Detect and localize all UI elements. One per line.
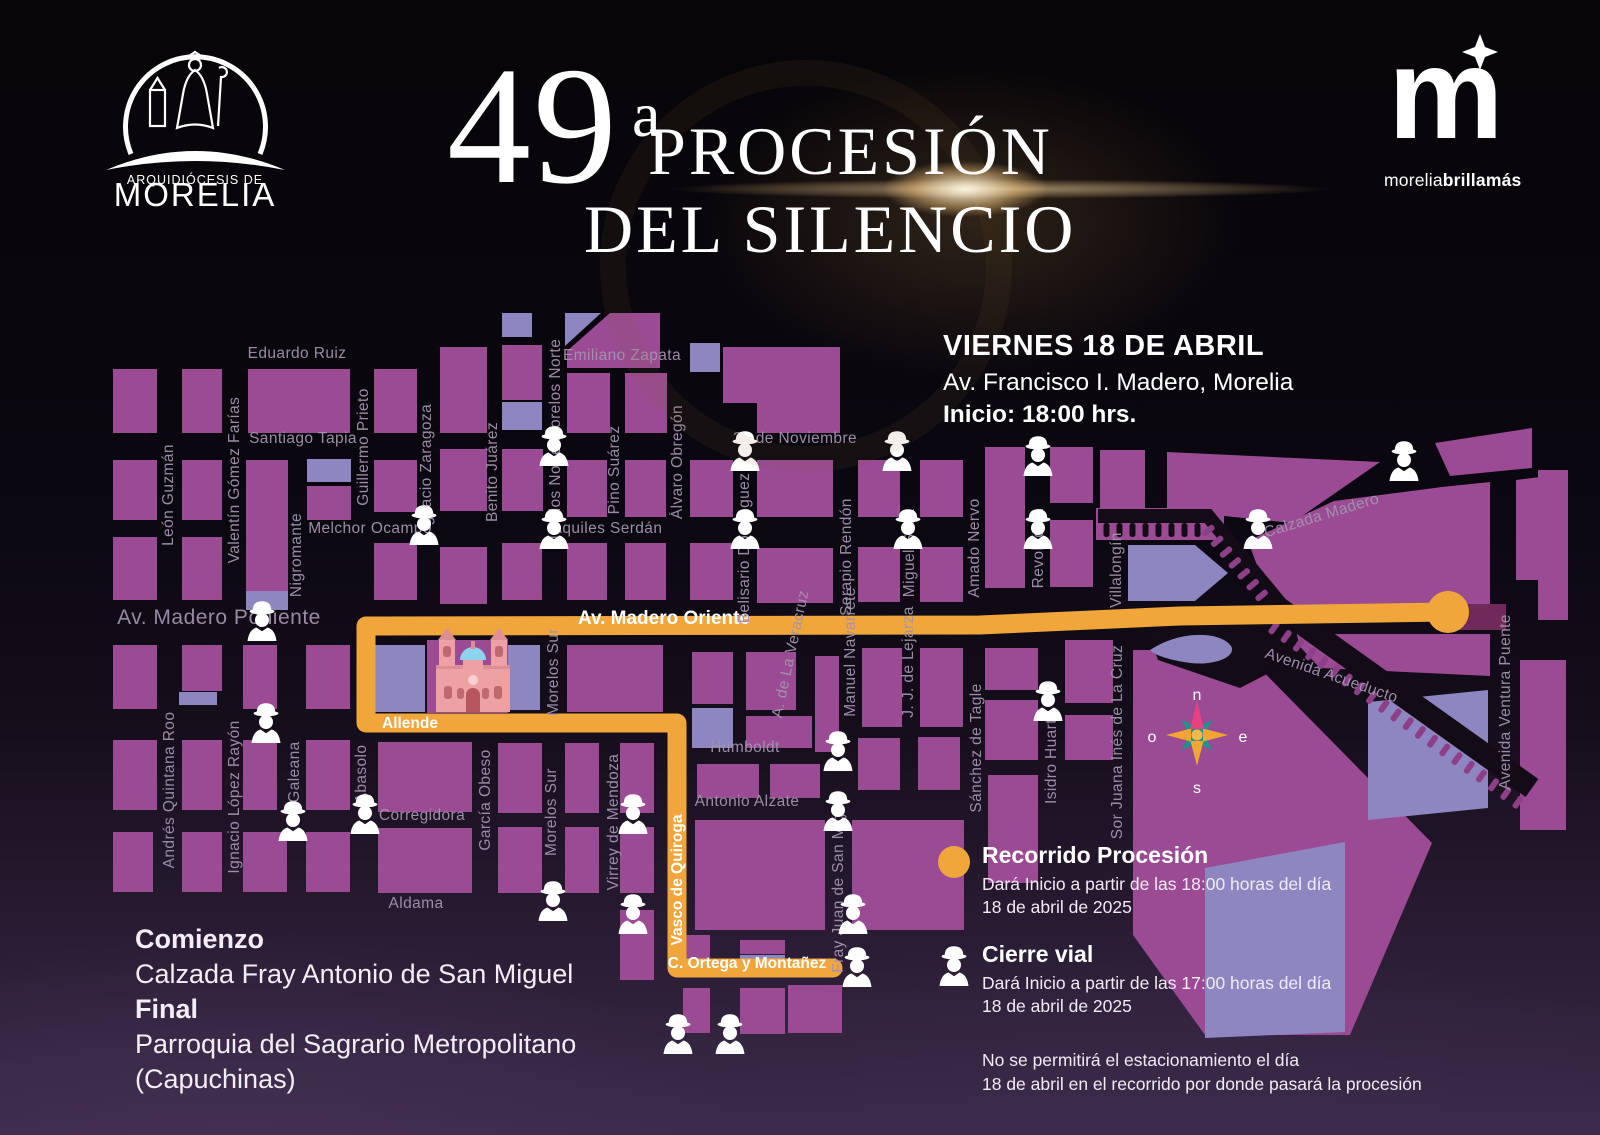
city-block (858, 738, 900, 790)
compass-label-south: s (1193, 780, 1201, 797)
city-block (1520, 660, 1566, 830)
city-block (1065, 640, 1113, 703)
street-label: Sánchez de Tagle (968, 683, 985, 812)
city-block (1050, 520, 1093, 587)
city-block (248, 369, 350, 433)
city-block (498, 743, 542, 813)
city-block-light (502, 402, 542, 430)
city-block (567, 543, 607, 600)
city-block (788, 985, 842, 1033)
start-value: Calzada Fray Antonio de San Miguel (135, 957, 576, 992)
city-block (567, 645, 663, 712)
tagline-mas: más (1486, 170, 1522, 190)
street-label: Aldama (389, 895, 444, 912)
city-block (695, 820, 825, 930)
city-block-light (1128, 545, 1228, 601)
street-label: Amado Nervo (966, 498, 983, 597)
street-label: Antonio Alzate (695, 793, 800, 810)
city-block (374, 460, 417, 512)
title-line-procesion: PROCESIÓN (648, 112, 1053, 191)
city-block (985, 447, 1025, 588)
event-location: Av. Francisco I. Madero, Morelia (943, 369, 1293, 397)
route-start-end-info: Comienzo Calzada Fray Antonio de San Mig… (135, 922, 576, 1097)
street-label: Corregidora (379, 807, 465, 824)
street-label: Avenida Ventura Puente (1497, 614, 1514, 790)
city-block (565, 827, 599, 893)
aqueduct-arch (1182, 523, 1188, 537)
legend-closure-desc2: 18 de abril de 2025 (982, 995, 1422, 1018)
street-label: Av. Madero Poniente (117, 606, 321, 629)
city-block (498, 827, 542, 893)
street-label: Valentín Gómez Farías (226, 397, 243, 564)
compass-label-west: o (1148, 729, 1157, 746)
city-block (502, 345, 542, 400)
city-block (378, 828, 472, 893)
street-label: Sor Juana Inés de La Cruz (1109, 645, 1126, 839)
city-block-light (179, 692, 217, 705)
city-block (740, 988, 785, 1034)
street-label: Humboldt (710, 739, 780, 756)
end-label: Final (135, 992, 576, 1027)
note-line2: 18 de abril en el recorrido por donde pa… (982, 1072, 1422, 1096)
city-block (182, 460, 222, 520)
end-value: Parroquia del Sagrario Metropolitano (135, 1027, 576, 1062)
street-label: Aquiles Serdán (552, 520, 663, 537)
police-officer-icon (1390, 441, 1419, 481)
route-street-label: C. Ortega y Montañez (668, 955, 827, 972)
street-label: Villalongín (1108, 532, 1125, 608)
street-label: Morelos Sur (545, 628, 562, 716)
city-block (920, 547, 963, 602)
city-block (182, 645, 222, 691)
legend-closure-desc1: Dará Inicio a partir de las 17:00 horas … (982, 972, 1422, 995)
street-label: Manuel Navarrete (842, 587, 859, 717)
compass-label-east: e (1239, 729, 1248, 746)
street-label: Morelos Sur (543, 768, 560, 856)
city-block (502, 449, 543, 511)
tagline-morelia: morelia (1384, 170, 1443, 190)
city-block-light (372, 645, 425, 712)
city-block (620, 827, 654, 893)
city-block (692, 652, 733, 704)
street-label: Morelos Norte (547, 339, 564, 442)
route-street-label: Av. Madero Oriente (578, 608, 750, 629)
aqueduct-arch (1143, 523, 1149, 537)
aqueduct-arch (1130, 523, 1136, 537)
city-block (985, 700, 1038, 760)
city-block (307, 486, 351, 520)
city-block (246, 460, 288, 591)
city-block (567, 460, 607, 517)
city-block (625, 543, 666, 600)
legend-closure-title: Cierre vial (982, 941, 1422, 968)
street-label: Eduardo Ruiz (248, 345, 347, 362)
aqueduct-arch (1169, 523, 1175, 537)
police-officer-icon (934, 941, 974, 989)
police-officer-icon (1024, 509, 1053, 549)
police-officer-icon (824, 791, 853, 831)
city-block (862, 648, 902, 727)
legend-route-row: Recorrido Procesión Dará Inicio a partir… (938, 842, 1422, 919)
city-block (920, 648, 963, 727)
event-date: VIERNES 18 DE ABRIL (943, 330, 1293, 363)
route-start-dot (1427, 591, 1469, 633)
police-officer-icon (1024, 436, 1053, 476)
city-block (182, 740, 222, 810)
archdiocese-logo: ARQUIDIÓCESIS DE MORELIA (98, 34, 293, 209)
street-label: García Obeso (477, 749, 494, 850)
city-block (243, 645, 277, 709)
city-block (113, 832, 153, 892)
event-start-time: Inicio: 18:00 hrs. (943, 401, 1293, 429)
city-block-light (508, 645, 540, 710)
city-block (1100, 450, 1145, 508)
city-block (113, 537, 157, 600)
city-block (374, 543, 417, 600)
street-label: Nigromante (288, 513, 305, 597)
city-block (1435, 428, 1532, 476)
city-block (182, 537, 222, 600)
city-block (625, 460, 666, 517)
city-block (918, 737, 960, 790)
city-block (920, 460, 963, 517)
note-line1: No se permitirá el estacionamiento el dí… (982, 1048, 1422, 1072)
city-block (565, 743, 599, 813)
route-dot-icon (938, 846, 970, 878)
city-block (182, 369, 222, 433)
legend-route-title: Recorrido Procesión (982, 842, 1422, 869)
city-block-light (502, 313, 532, 337)
city-block (440, 449, 487, 511)
legend-route-desc2: 18 de abril de 2025 (982, 896, 1422, 919)
street-label: Benito Juárez (484, 422, 501, 522)
street-label: Pino Suárez (606, 426, 623, 515)
city-block (1050, 447, 1093, 503)
police-officer-icon (731, 509, 760, 549)
city-block (502, 543, 542, 600)
sparkle-icon (1462, 34, 1498, 70)
police-officer-icon (252, 703, 281, 743)
city-block (378, 742, 472, 812)
city-block (690, 543, 733, 600)
street-label: León Guzmán (160, 444, 177, 546)
street-label: J. J. de Lejarza (900, 606, 917, 718)
city-block (985, 648, 1038, 690)
street-label: Melchor Ocampo (308, 520, 432, 537)
city-block (306, 645, 350, 709)
route-street-label: Allende (382, 715, 438, 732)
police-officer-icon (539, 881, 568, 921)
street-label: Andrés Quintana Roo (161, 712, 178, 869)
legend: Recorrido Procesión Dará Inicio a partir… (938, 842, 1422, 1096)
city-block (690, 460, 733, 517)
street-label: Guillermo Prieto (355, 388, 372, 506)
city-block (1516, 474, 1566, 580)
title-number: 49 (447, 42, 619, 210)
compass-label-north: n (1193, 687, 1202, 704)
street-label: Santiago Tapia (249, 430, 357, 447)
city-block (113, 645, 157, 709)
city-block (440, 547, 487, 604)
city-block (858, 547, 900, 602)
morelia-brand-tagline: moreliabrillamás (1384, 170, 1521, 191)
city-block (113, 740, 157, 810)
route-street-label: Vasco de Quiroga (669, 814, 686, 945)
event-info: VIERNES 18 DE ABRIL Av. Francisco I. Mad… (943, 330, 1293, 429)
city-block (306, 740, 350, 810)
city-block (113, 369, 157, 433)
legend-parking-note: No se permitirá el estacionamiento el dí… (982, 1048, 1422, 1096)
archdiocese-name-large: MORELIA (114, 176, 277, 209)
city-block (374, 369, 417, 433)
street-label: Galeana (286, 741, 303, 802)
city-block (243, 740, 277, 810)
city-block (620, 910, 654, 980)
title-line-del-silencio: DEL SILENCIO (584, 190, 1076, 269)
city-block-light (307, 459, 351, 482)
legend-route-desc1: Dará Inicio a partir de las 18:00 horas … (982, 873, 1422, 896)
aqueduct-arch (1156, 523, 1162, 537)
street-label: Virrey de Mendoza (605, 754, 622, 891)
city-block (306, 832, 350, 892)
street-label: Isidro Huarte (1043, 710, 1060, 804)
tagline-brilla: brilla (1443, 170, 1486, 190)
city-block (1065, 715, 1113, 760)
legend-closure-row: Cierre vial Dará Inicio a partir de las … (938, 941, 1422, 1018)
start-label: Comienzo (135, 922, 576, 957)
police-officer-icon (279, 801, 308, 841)
city-block (182, 832, 222, 892)
police-officer-icon (540, 426, 569, 466)
city-block (440, 347, 487, 433)
city-block (567, 373, 610, 433)
city-block (113, 460, 157, 520)
city-block (740, 940, 785, 954)
street-label: Ignacio López Rayón (226, 720, 243, 873)
end-value-2: (Capuchinas) (135, 1062, 576, 1097)
aqueduct-arch (1195, 523, 1201, 537)
